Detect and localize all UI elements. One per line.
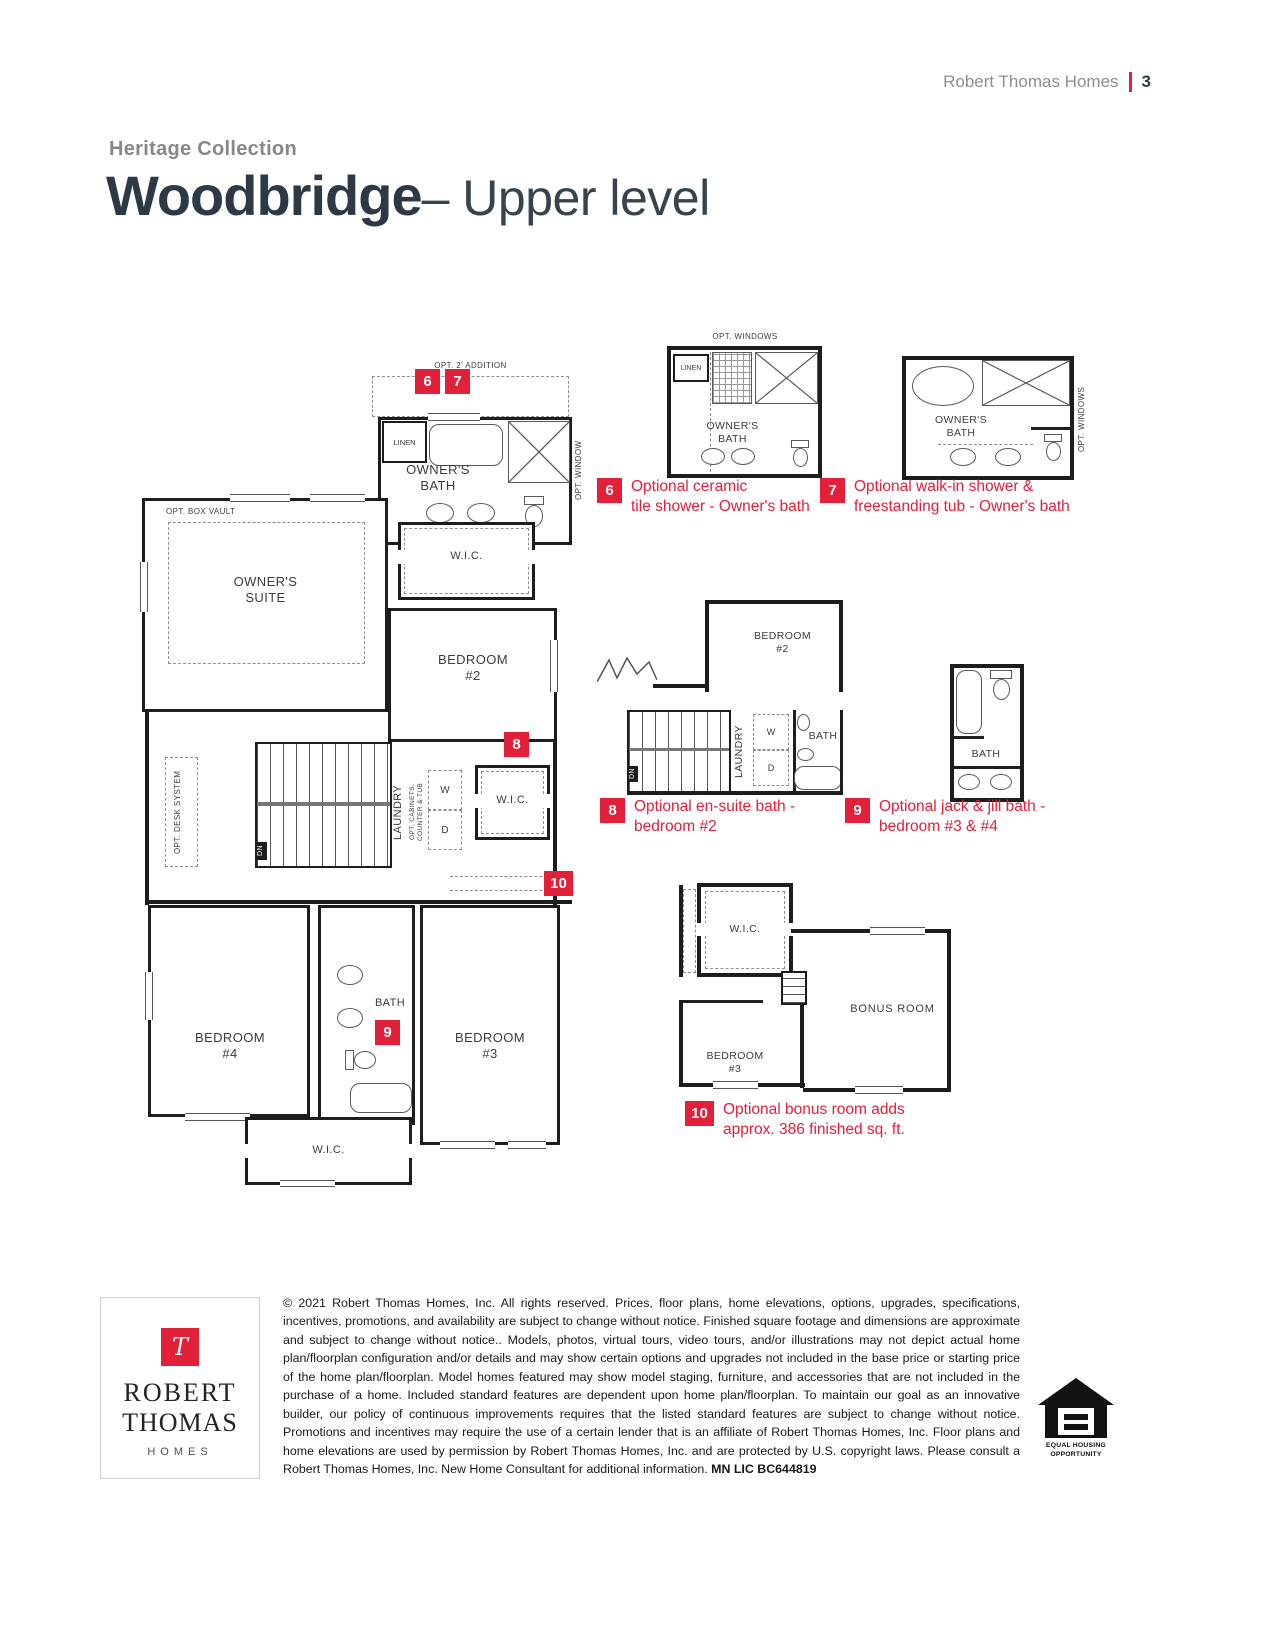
wall-segment xyxy=(705,600,709,692)
wall-segment xyxy=(950,766,1022,769)
stair-rail xyxy=(257,802,390,806)
header-divider xyxy=(1129,72,1132,92)
option6-caption: 6 Optional ceramic tile shower - Owner's… xyxy=(597,477,810,518)
owners-bath-label: OWNER'S BATH xyxy=(685,420,780,446)
stairs xyxy=(627,710,731,794)
window xyxy=(440,1141,495,1149)
toilet xyxy=(354,1051,376,1069)
stairs-dn-label: DN xyxy=(257,842,267,860)
option7-caption: 7 Optional walk-in shower & freestanding… xyxy=(820,477,1070,518)
wall-segment xyxy=(839,600,843,692)
logo-line1: ROBERT xyxy=(123,1378,236,1408)
bath-label: BATH xyxy=(365,997,415,1011)
opt-addition-label: OPT. 2' ADDITION xyxy=(372,361,569,371)
equal-housing-house-icon xyxy=(1045,1405,1107,1438)
window xyxy=(140,562,148,612)
closet-shelving xyxy=(683,889,696,973)
wall-segment xyxy=(145,900,572,904)
bonus-room-label: BONUS ROOM xyxy=(835,1003,950,1017)
wall-segment xyxy=(947,929,951,1092)
equal-housing-text: EQUAL HOUSING OPPORTUNITY xyxy=(1036,1441,1116,1459)
stairs-dn-label: DN xyxy=(629,766,638,782)
brochure-page: Robert Thomas Homes 3 Heritage Collectio… xyxy=(0,0,1275,1650)
option-10-badge: 10 xyxy=(544,871,573,896)
break-line xyxy=(597,654,657,688)
option9-text: Optional jack & jill bath - bedroom #3 &… xyxy=(879,797,1045,838)
opt-cabinets-label: OPT. CABINETS, COUNTER & TUB xyxy=(409,760,423,864)
logo-line3: HOMES xyxy=(147,1446,212,1458)
sink xyxy=(797,714,810,731)
option8-text: Optional en-suite bath - bedroom #2 xyxy=(634,797,795,838)
opt-addition-outline xyxy=(372,376,569,417)
toilet xyxy=(797,748,814,761)
wall-segment xyxy=(705,600,843,604)
opt-desk-label: OPT. DESK SYSTEM xyxy=(173,760,185,864)
option-9-badge: 9 xyxy=(375,1020,400,1045)
owners-bath-label: OWNER'S BATH xyxy=(916,414,1006,440)
laundry-label: LAUNDRY xyxy=(733,714,749,790)
wall-segment xyxy=(679,1000,683,1087)
dryer-box: D xyxy=(753,750,789,786)
sink xyxy=(701,448,725,465)
bedroom4-room xyxy=(148,905,310,1117)
window xyxy=(855,1086,903,1094)
toilet xyxy=(1046,442,1061,461)
wall-segment xyxy=(840,710,843,795)
washer-box: W xyxy=(428,770,462,810)
window xyxy=(870,927,925,935)
option9-caption: 9 Optional jack & jill bath - bedroom #3… xyxy=(845,797,1045,838)
plan-level: – Upper level xyxy=(422,170,710,226)
option-7-badge: 7 xyxy=(445,369,470,394)
sink xyxy=(731,448,755,465)
wic-upper-label: W.I.C. xyxy=(398,550,535,564)
window xyxy=(713,1081,758,1089)
bedroom3-label: BEDROOM #3 xyxy=(690,1050,780,1076)
freestanding-tub xyxy=(912,366,974,406)
sink xyxy=(950,448,976,466)
bedroom3-label: BEDROOM #3 xyxy=(430,1030,550,1063)
option10-text: Optional bonus room adds approx. 386 fin… xyxy=(723,1100,905,1141)
bedroom4-label: BEDROOM #4 xyxy=(170,1030,290,1063)
sink xyxy=(467,503,495,523)
shower-x-icon xyxy=(509,422,569,482)
equal-housing-logo: EQUAL HOUSING OPPORTUNITY xyxy=(1036,1378,1116,1459)
header-brand: Robert Thomas Homes xyxy=(943,72,1118,92)
bathtub xyxy=(794,766,842,790)
option-9-badge: 9 xyxy=(845,798,870,823)
bedroom3-room xyxy=(420,905,560,1145)
bedroom2-label: BEDROOM #2 xyxy=(730,630,835,656)
sink xyxy=(337,1008,363,1028)
sink xyxy=(337,965,363,985)
option10-caption: 10 Optional bonus room adds approx. 386 … xyxy=(685,1100,905,1141)
option-8-badge: 8 xyxy=(504,732,529,757)
wall-segment xyxy=(1031,427,1074,430)
wall-segment xyxy=(653,684,709,688)
owners-suite-label: OWNER'S SUITE xyxy=(203,574,328,607)
window xyxy=(508,1141,546,1149)
shower-x-icon xyxy=(983,361,1069,405)
toilet-tank xyxy=(791,440,809,448)
wall-segment xyxy=(800,1003,804,1088)
window xyxy=(310,494,365,502)
vanity-counter xyxy=(938,444,1033,445)
wic-mid-label: W.I.C. xyxy=(475,794,550,808)
option-10-badge: 10 xyxy=(685,1101,714,1126)
option6-text: Optional ceramic tile shower - Owner's b… xyxy=(631,477,810,518)
wall-segment xyxy=(679,885,683,977)
toilet xyxy=(793,448,808,467)
option-7-badge: 7 xyxy=(820,478,845,503)
logo-line2: THOMAS xyxy=(122,1408,238,1438)
wic-label: W.I.C. xyxy=(697,923,793,936)
shower xyxy=(755,352,818,404)
toilet-tank xyxy=(524,496,544,505)
option-6-badge: 6 xyxy=(415,369,440,394)
owners-bath-label: OWNER'S BATH xyxy=(380,462,496,495)
equal-sign-icon xyxy=(1058,1408,1094,1435)
dryer-box: D xyxy=(428,810,462,850)
sink xyxy=(426,503,454,523)
wic-bottom-label: W.I.C. xyxy=(245,1144,412,1158)
bath-label: BATH xyxy=(801,730,845,743)
opt-windows-label: OPT. WINDOWS xyxy=(665,332,825,342)
legal-text: © 2021 Robert Thomas Homes, Inc. All rig… xyxy=(283,1296,1020,1476)
sink xyxy=(958,774,980,790)
window xyxy=(428,413,480,421)
logo-monogram: T xyxy=(161,1328,199,1366)
wall-segment xyxy=(950,736,984,739)
toilet xyxy=(993,679,1010,700)
license-number: MN LIC BC644819 xyxy=(711,1462,816,1476)
inset-option7-plan: OWNER'S BATH OPT. WINDOWS xyxy=(898,334,1093,482)
sink xyxy=(990,774,1012,790)
toilet-tank xyxy=(345,1050,354,1070)
bedroom2-label: BEDROOM #2 xyxy=(413,652,533,685)
inset-option10-plan: W.I.C. BONUS ROOM BEDROOM #3 xyxy=(655,845,955,1095)
wall-segment xyxy=(627,791,843,795)
sink xyxy=(995,448,1021,466)
stairs xyxy=(781,971,807,1005)
page-header: Robert Thomas Homes 3 xyxy=(943,72,1151,92)
toilet-tank xyxy=(990,670,1012,679)
opt-box-vault-label: OPT. BOX VAULT xyxy=(166,507,276,517)
window xyxy=(145,972,153,1020)
bathtub xyxy=(956,670,982,734)
inset-option6-plan: OPT. WINDOWS LINEN OWNER'S BATH xyxy=(655,332,835,482)
main-floor-plan: OPT. 2' ADDITION 6 7 LINEN OWNER'S BATH … xyxy=(140,352,576,1192)
option8-caption: 8 Optional en-suite bath - bedroom #2 xyxy=(600,797,795,838)
option-6-badge: 6 xyxy=(597,478,622,503)
inset-option8-plan: BEDROOM #2 DN LAUNDRY W D BATH xyxy=(595,572,847,796)
bathtub xyxy=(429,424,503,466)
walk-in-shower xyxy=(982,360,1070,406)
window xyxy=(230,494,290,502)
toilet-tank xyxy=(1044,434,1062,442)
linen-closet: LINEN xyxy=(382,421,427,463)
ceramic-tile-shower xyxy=(712,352,752,404)
page-number: 3 xyxy=(1142,72,1151,92)
window xyxy=(185,1113,250,1121)
shower xyxy=(508,421,570,483)
legal-disclaimer: © 2021 Robert Thomas Homes, Inc. All rig… xyxy=(283,1294,1020,1479)
opt-window-label: OPT. WINDOW xyxy=(574,425,586,515)
linen-closet: LINEN xyxy=(673,354,709,382)
laundry-label: LAUNDRY xyxy=(392,760,408,864)
stair-rail xyxy=(629,748,729,751)
option-8-badge: 8 xyxy=(600,798,625,823)
wall-segment xyxy=(683,1000,763,1003)
builder-logo: T ROBERT THOMAS HOMES xyxy=(100,1297,260,1479)
bathtub xyxy=(350,1083,412,1113)
collection-label: Heritage Collection xyxy=(109,138,297,161)
page-title: Woodbridge– Upper level xyxy=(106,163,710,228)
equal-housing-roof-icon xyxy=(1038,1378,1114,1405)
window xyxy=(280,1180,335,1187)
inset-option9-plan: BATH xyxy=(948,662,1028,804)
window xyxy=(550,640,558,692)
option7-text: Optional walk-in shower & freestanding t… xyxy=(854,477,1070,518)
wall-segment xyxy=(145,712,149,905)
plan-name: Woodbridge xyxy=(106,164,422,227)
washer-box: W xyxy=(753,714,789,750)
shower-x-icon xyxy=(756,353,817,403)
bath-label: BATH xyxy=(956,748,1016,761)
opt-windows-label: OPT. WINDOWS xyxy=(1077,374,1089,464)
